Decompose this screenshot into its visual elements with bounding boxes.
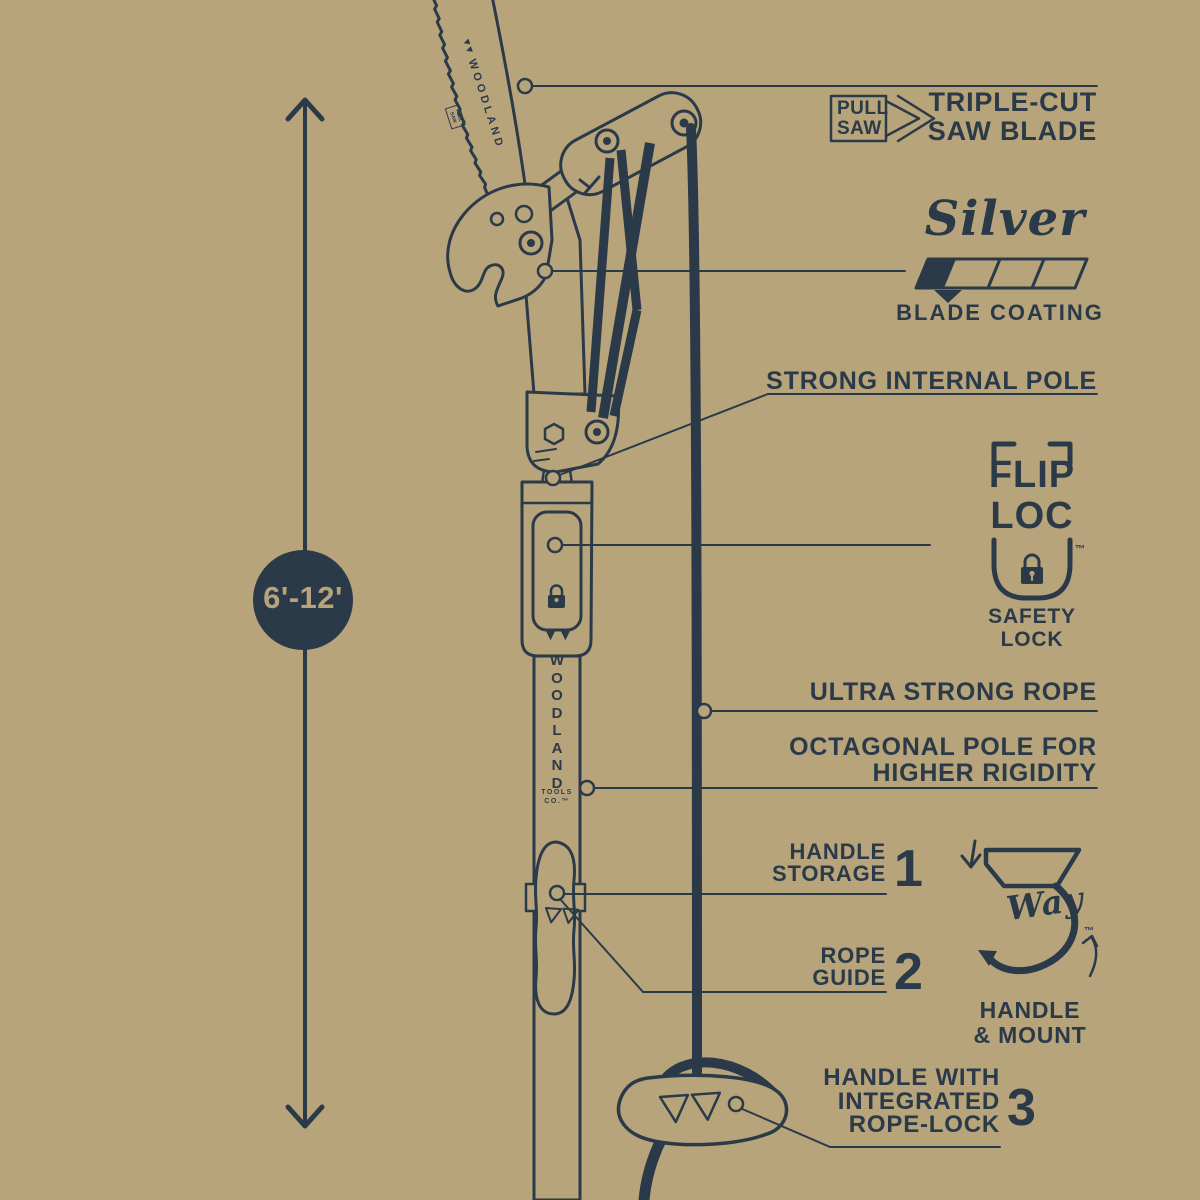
label-triple-cut-saw-blade: TRIPLE-CUT SAW BLADE (928, 88, 1097, 146)
lock-line: LOCK (957, 628, 1107, 651)
number-2: 2 (894, 946, 923, 998)
rope-guide-line2: GUIDE (812, 967, 886, 989)
triple-cut-line2: SAW BLADE (928, 117, 1097, 146)
label-handle-rope-lock: HANDLE WITH INTEGRATED ROPE-LOCK (823, 1066, 1000, 1137)
label-ultra-strong-rope: ULTRA STRONG ROPE (810, 679, 1097, 706)
callout-point-handle-storage (550, 886, 564, 900)
label-safety-lock: SAFETY LOCK (957, 605, 1107, 651)
label-strong-internal-pole: STRONG INTERNAL POLE (766, 368, 1097, 395)
label-handle-mount: HANDLE & MOUNT (950, 998, 1110, 1048)
pulley-lever (551, 83, 711, 205)
flip-loc-lock-icon (1021, 555, 1043, 584)
pull-saw-line2: SAW (837, 119, 889, 139)
silver-script: Silver (880, 194, 1130, 246)
handle-storage-line1: HANDLE (772, 841, 886, 863)
pole-letter: O (534, 670, 580, 688)
pole-tools-text: TOOLS (534, 789, 580, 796)
rope-guide-line1: ROPE (812, 945, 886, 967)
pull-saw-line1: PULL (837, 99, 889, 119)
pole-letter: A (534, 740, 580, 758)
pole-letter: N (534, 757, 580, 775)
safety-line: SAFETY (957, 605, 1107, 628)
flip-loc-wordmark: FLIP LOC (962, 455, 1102, 537)
label-rope-guide: ROPE GUIDE (812, 945, 886, 988)
callout-point-flip-loc (548, 538, 562, 552)
triple-cut-line1: TRIPLE-CUT (928, 88, 1097, 117)
pole-brand-word: W O O D L A N D (534, 652, 580, 792)
flip-loc-line1: FLIP (962, 455, 1102, 496)
handle-mount-line2: & MOUNT (950, 1023, 1110, 1048)
label-blade-coating: BLADE COATING (880, 301, 1120, 325)
label-handle-storage: HANDLE STORAGE (772, 841, 886, 884)
pole-letter: O (534, 687, 580, 705)
height-range-label: 6'-12' (253, 580, 353, 616)
callout-point-octagonal (580, 781, 594, 795)
callout-point-blade-coating (538, 264, 552, 278)
pole-letter: W (534, 652, 580, 670)
pull-saw-badge-text: PULL SAW (837, 99, 889, 139)
rope-main (691, 128, 697, 1072)
pole-letter: D (534, 705, 580, 723)
label-octagonal-pole: OCTAGONAL POLE FOR HIGHER RIGIDITY (789, 734, 1097, 786)
callout-point-triple-cut (518, 79, 532, 93)
woodland-triangles-icon: ▼▼ (534, 626, 580, 643)
blade-coating-icon (916, 259, 1087, 303)
rope-tail (644, 1138, 662, 1200)
octagonal-line2: HIGHER RIGIDITY (789, 760, 1097, 786)
callout-point-ultra-rope (697, 704, 711, 718)
handle-mount-line1: HANDLE (950, 998, 1110, 1023)
flip-loc-line2: LOC (962, 496, 1102, 537)
rope-lock-line2: INTEGRATED (823, 1090, 1000, 1114)
callout-point-rope-lock (729, 1097, 743, 1111)
rope (644, 128, 778, 1200)
flip-loc-tm: ™ (1075, 544, 1085, 555)
callout-point-strong-pole (546, 471, 560, 485)
pole-letter: L (534, 722, 580, 740)
number-1: 1 (894, 843, 923, 895)
rope-lock-line1: HANDLE WITH (823, 1066, 1000, 1090)
octagonal-line1: OCTAGONAL POLE FOR (789, 734, 1097, 760)
number-3: 3 (1007, 1082, 1036, 1134)
handle-storage-line2: STORAGE (772, 863, 886, 885)
bottom-handle (618, 1075, 786, 1144)
rope-lock-line3: ROPE-LOCK (823, 1113, 1000, 1137)
three-way-tm: ™ (1084, 926, 1094, 937)
infographic-canvas: ▼▼ WOODLAND PULL SAW ▼▼ W O O D L A N D … (0, 0, 1200, 1200)
pole-co-text: CO.™ (534, 798, 580, 805)
